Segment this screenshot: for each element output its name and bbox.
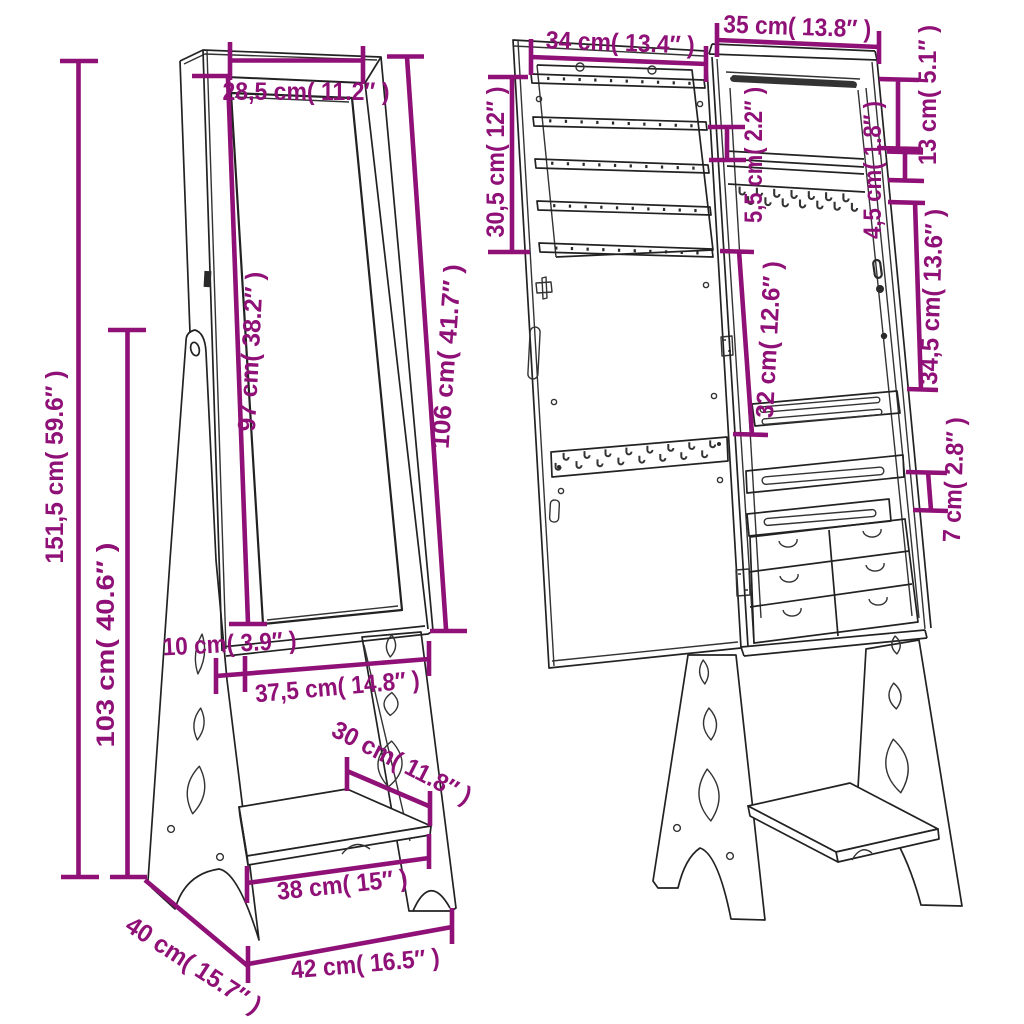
svg-text:4,5 cm( 1.8″ ): 4,5 cm( 1.8″ ) [859, 101, 887, 239]
svg-text:35 cm( 13.8″ ): 35 cm( 13.8″ ) [723, 10, 872, 43]
svg-text:34 cm( 13.4″ ): 34 cm( 13.4″ ) [545, 26, 695, 59]
svg-text:28,5 cm( 11.2″ ): 28,5 cm( 11.2″ ) [223, 78, 390, 106]
svg-text:151,5 cm( 59.6″ ): 151,5 cm( 59.6″ ) [41, 371, 69, 564]
svg-text:7 cm( 2.8″ ): 7 cm( 2.8″ ) [938, 417, 970, 543]
svg-text:5,5 cm( 2.2″ ): 5,5 cm( 2.2″ ) [740, 87, 768, 223]
svg-text:13 cm( 5.1″ ): 13 cm( 5.1″ ) [914, 25, 942, 165]
svg-text:30,5 cm( 12″ ): 30,5 cm( 12″ ) [482, 87, 510, 238]
svg-text:103 cm( 40.6″ ): 103 cm( 40.6″ ) [92, 543, 120, 748]
